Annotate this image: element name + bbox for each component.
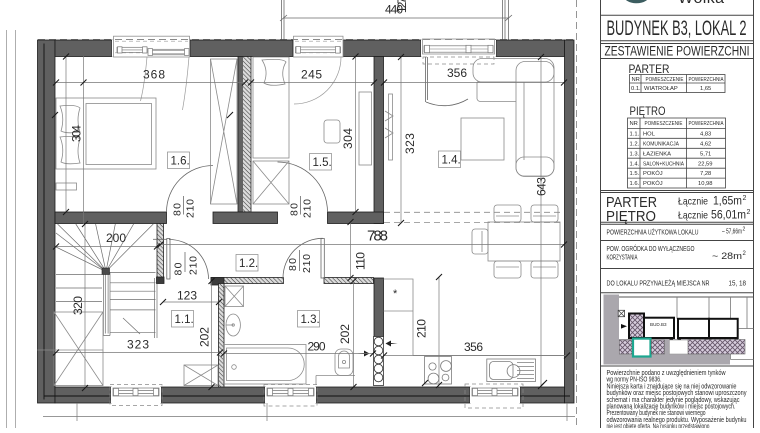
svg-text:BUD.B3: BUD.B3	[650, 322, 667, 327]
svg-text:110: 110	[354, 252, 368, 270]
svg-text:PARTER: PARTER	[629, 62, 670, 76]
svg-text:~ 28m: ~ 28m	[712, 251, 742, 262]
svg-text:210: 210	[302, 199, 314, 218]
svg-text:4,83: 4,83	[700, 132, 711, 138]
svg-text:210: 210	[188, 256, 200, 275]
svg-text:202: 202	[338, 324, 352, 344]
svg-text:Wólka: Wólka	[678, 0, 724, 7]
svg-text:POKÓJ: POKÓJ	[643, 180, 663, 187]
svg-text:304: 304	[341, 128, 355, 149]
svg-text:245: 245	[301, 68, 322, 82]
svg-text:POMIESZCZENIE: POMIESZCZENIE	[645, 121, 683, 127]
svg-text:210: 210	[185, 199, 197, 218]
svg-text:1.3.: 1.3.	[301, 314, 320, 326]
svg-text:1.6.: 1.6.	[630, 181, 640, 187]
svg-text:– 57,66m: – 57,66m	[722, 227, 742, 236]
svg-text:1.3.: 1.3.	[630, 151, 640, 157]
svg-text:123: 123	[177, 289, 197, 303]
svg-text:NR: NR	[630, 121, 638, 127]
svg-text:7,28: 7,28	[700, 171, 711, 177]
svg-text:POWIERZCHNIA UŻYTKOWA LOKALU: POWIERZCHNIA UŻYTKOWA LOKALU	[607, 228, 699, 237]
svg-text:356: 356	[447, 66, 467, 80]
svg-text:788: 788	[367, 228, 388, 245]
svg-text:BUDYNEK B3, LOKAL 2: BUDYNEK B3, LOKAL 2	[607, 16, 747, 40]
svg-text:1.5.: 1.5.	[630, 171, 640, 177]
svg-text:2: 2	[743, 227, 746, 233]
svg-text:PIĘTRO: PIĘTRO	[606, 208, 656, 225]
svg-text:0.1.: 0.1.	[631, 86, 641, 92]
svg-text:1.2.: 1.2.	[630, 141, 640, 147]
svg-text:80: 80	[173, 262, 185, 275]
svg-text:2: 2	[743, 195, 747, 202]
svg-text:DO LOKALU PRZYNALEŻĄ MIEJSCA N: DO LOKALU PRZYNALEŻĄ MIEJSCA NR	[607, 279, 710, 288]
svg-text:56,01m: 56,01m	[711, 210, 746, 222]
svg-text:643: 643	[535, 177, 549, 196]
svg-text:210: 210	[415, 319, 429, 338]
svg-text:304: 304	[70, 125, 84, 142]
svg-text:22,59: 22,59	[698, 161, 713, 167]
svg-text:1,65m: 1,65m	[713, 196, 742, 208]
svg-text:1.4.: 1.4.	[630, 161, 640, 167]
svg-text:10,98: 10,98	[698, 181, 713, 187]
svg-text:Łącznie: Łącznie	[678, 196, 708, 208]
svg-text:HOL: HOL	[643, 132, 656, 138]
svg-text:15, 18: 15, 18	[729, 279, 747, 288]
svg-text:POMIESZCZENIE: POMIESZCZENIE	[646, 77, 684, 83]
svg-text:nie jest objęte ofertą. Na rys: nie jest objęte ofertą. Na rysunku przed…	[607, 424, 710, 428]
svg-text:1.1.: 1.1.	[175, 314, 194, 326]
svg-text:80: 80	[172, 203, 184, 216]
svg-text:NR: NR	[632, 77, 640, 83]
svg-text:POWIERZCHNIA: POWIERZCHNIA	[689, 121, 724, 127]
svg-text:80: 80	[289, 203, 301, 216]
svg-text:KOMUNIKACJA: KOMUNIKACJA	[643, 141, 679, 147]
svg-text:323: 323	[403, 133, 417, 154]
svg-text:80: 80	[287, 258, 299, 271]
svg-text:*: *	[393, 288, 398, 300]
svg-text:290: 290	[308, 340, 326, 354]
svg-text:320: 320	[71, 296, 85, 315]
svg-text:127: 127	[395, 0, 409, 13]
svg-text:Łącznie: Łącznie	[678, 210, 708, 222]
svg-text:323: 323	[127, 338, 149, 352]
svg-text:1.1.: 1.1.	[630, 132, 640, 138]
svg-text:1,65: 1,65	[700, 86, 711, 92]
svg-text:5,71: 5,71	[700, 151, 711, 157]
svg-text:1.6.: 1.6.	[171, 156, 190, 168]
svg-text:356: 356	[464, 340, 483, 354]
svg-text:KORZYSTANIA: KORZYSTANIA	[607, 253, 638, 262]
svg-text:1.2.: 1.2.	[239, 258, 258, 270]
svg-text:4,62: 4,62	[700, 141, 711, 147]
svg-text:2: 2	[747, 209, 751, 216]
svg-text:1.5.: 1.5.	[313, 157, 332, 169]
svg-text:202: 202	[198, 327, 212, 347]
svg-text:POKÓJ: POKÓJ	[643, 170, 663, 177]
svg-text:ŁAZIENKA: ŁAZIENKA	[643, 151, 671, 157]
svg-text:200: 200	[106, 231, 126, 245]
svg-text:POWIERZCHNIA: POWIERZCHNIA	[689, 77, 724, 83]
svg-text:210: 210	[301, 254, 313, 273]
svg-text:1.4.: 1.4.	[442, 155, 461, 167]
svg-text:SALON+KUCHNIA: SALON+KUCHNIA	[643, 161, 684, 167]
svg-text:WIATROŁAP: WIATROŁAP	[644, 86, 678, 92]
svg-text:ZESTAWIENIE POWIERZCHNI: ZESTAWIENIE POWIERZCHNI	[605, 44, 750, 59]
svg-text:PIĘTRO: PIĘTRO	[630, 104, 666, 118]
svg-text:368: 368	[143, 68, 165, 82]
